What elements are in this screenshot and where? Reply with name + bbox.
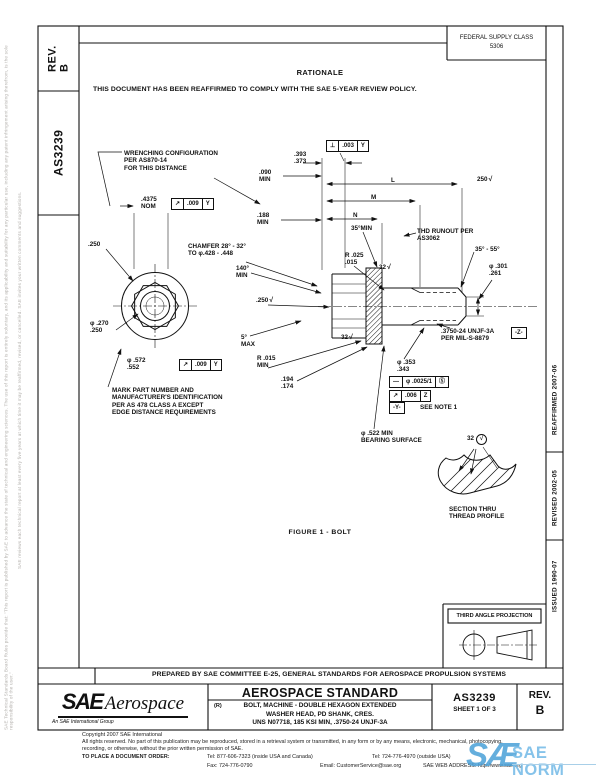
watermark-logo: SÆ — [466, 738, 517, 771]
aerospace-logo-text: Aerospace — [105, 693, 185, 715]
sidebar-doc-number: AS3239 — [38, 91, 79, 215]
order-label: TO PLACE A DOCUMENT ORDER: — [82, 755, 170, 760]
sae-norm-watermark: SÆ SAE NORM — [466, 738, 600, 776]
rev-value: B — [517, 703, 563, 717]
left-rail-disclaimer-1: SAE Technical Standards Board Rules prov… — [4, 30, 13, 730]
fsc-code: 5306 — [490, 43, 503, 52]
sae-aerospace-logo: SAE Aerospace An SAE International Group — [38, 684, 208, 730]
sidebar-rev-label: REV. B — [38, 26, 79, 91]
sheet-number: SHEET 1 OF 3 — [432, 706, 517, 713]
figure-caption: FIGURE 1 - BOLT — [250, 529, 390, 536]
tel-inside: Tel: 877-606-7323 (inside USA and Canada… — [207, 755, 313, 760]
copyright-line: Copyright 2007 SAE International — [82, 733, 162, 738]
logo-tagline: An SAE International Group — [52, 719, 114, 725]
reaffirmed-date: REAFFIRMED 2007-06 — [547, 350, 563, 450]
fax-number: Fax: 724-776-0790 — [207, 764, 253, 769]
third-angle-projection-label: THIRD ANGLE PROJECTION — [448, 609, 541, 623]
standard-type-heading: AEROSPACE STANDARD — [208, 686, 432, 700]
rationale-body: THIS DOCUMENT HAS BEEN REAFFIRMED TO COM… — [93, 86, 513, 93]
sae-logo-text: SAE — [62, 689, 103, 715]
federal-supply-class-box: FEDERAL SUPPLY CLASS 5306 — [447, 27, 546, 59]
issued-date: ISSUED 1990-07 — [547, 546, 563, 626]
technical-drawing-geometry — [0, 0, 600, 776]
revised-date: REVISED 2002-05 — [547, 458, 563, 538]
rev-label: REV. — [517, 690, 563, 701]
rationale-title: RATIONALE — [240, 68, 400, 77]
watermark-underline — [512, 764, 596, 765]
document-page: SAE Technical Standards Board Rules prov… — [0, 0, 600, 776]
fsc-title: FEDERAL SUPPLY CLASS — [460, 34, 534, 43]
left-rail-disclaimer-2: SAE reviews each technical report at lea… — [15, 30, 24, 730]
tel-outside: Tel: 724-776-4970 (outside USA) — [372, 755, 451, 760]
prepared-by-note: PREPARED BY SAE COMMITTEE E-25, GENERAL … — [96, 671, 562, 678]
watermark-text: SAE NORM — [512, 745, 600, 776]
document-title: BOLT, MACHINE - DOUBLE HEXAGON EXTENDED … — [208, 702, 432, 728]
title-block-doc-number: AS3239 — [432, 692, 517, 704]
email-address: Email: CustomerService@sae.org — [320, 764, 401, 769]
rights-line-2: recording, or otherwise, without the pri… — [82, 747, 243, 752]
